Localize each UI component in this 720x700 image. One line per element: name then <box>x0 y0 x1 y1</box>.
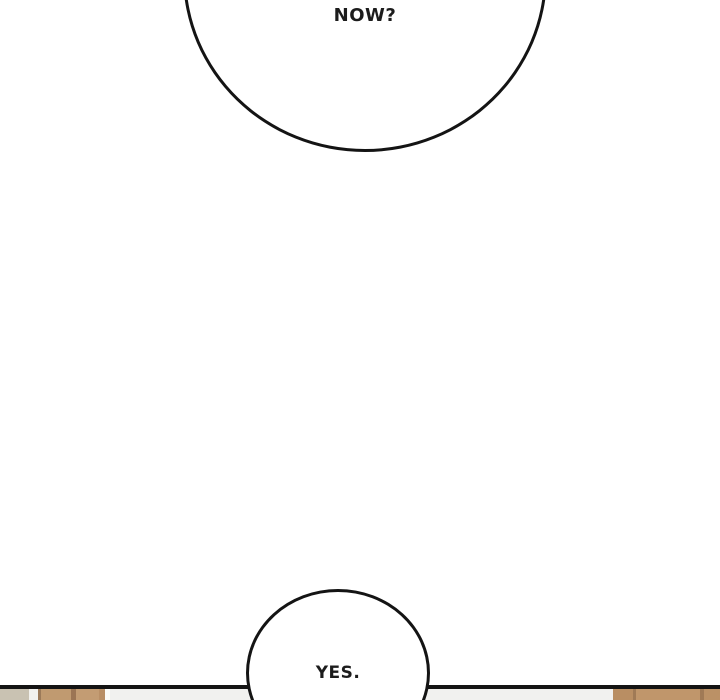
speech-bubble-bottom <box>246 589 430 700</box>
door-plank-left <box>41 689 71 700</box>
speech-bubble-bottom-text: YES. <box>246 663 430 683</box>
door-plank-right-b <box>636 689 700 700</box>
comic-page: NOW? YES. <box>0 0 720 700</box>
door-plank-right-a <box>613 689 633 700</box>
door-plank-mid <box>76 689 99 700</box>
wall-white-gap <box>29 689 38 700</box>
wall-beige-left <box>0 689 29 700</box>
speech-bubble-top-text: NOW? <box>183 5 547 26</box>
door-plank-right-c <box>704 689 720 700</box>
